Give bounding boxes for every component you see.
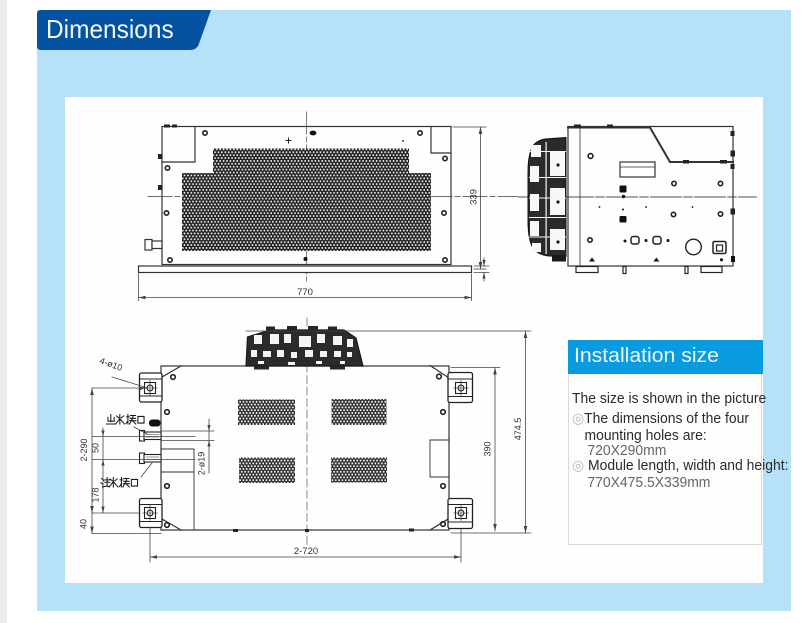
svg-text:40: 40	[79, 519, 89, 529]
svg-text:474.5: 474.5	[513, 418, 523, 441]
svg-text:390: 390	[483, 441, 493, 456]
svg-text:2-ø19: 2-ø19	[197, 452, 207, 476]
svg-text:2-290: 2-290	[79, 438, 89, 461]
svg-text:770: 770	[297, 287, 313, 298]
svg-text:339: 339	[469, 189, 480, 205]
svg-text:2-720: 2-720	[294, 546, 318, 557]
svg-text:178: 178	[91, 487, 101, 502]
svg-text:4-ø10: 4-ø10	[98, 355, 124, 372]
svg-text:50: 50	[91, 443, 101, 453]
